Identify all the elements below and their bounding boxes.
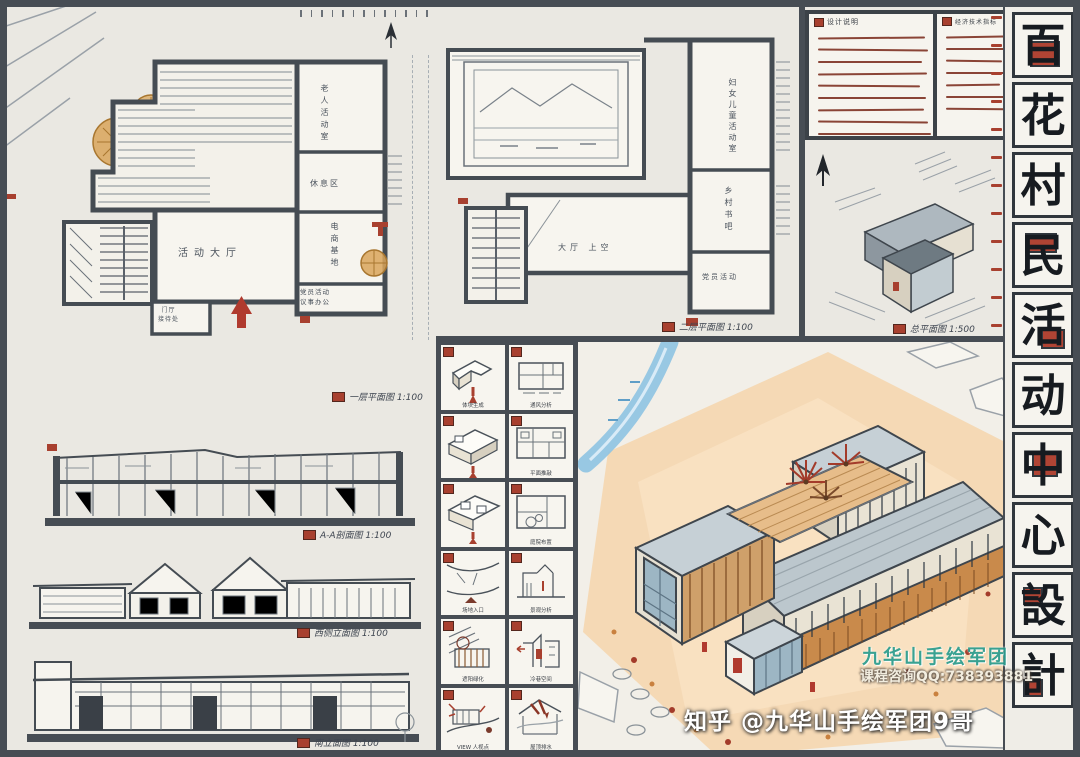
section-detail: [65, 466, 355, 514]
title-char-box: 民: [1012, 222, 1074, 288]
room-label: 大厅 上空: [558, 242, 613, 254]
south-elev-caption: 南立面图 1:100: [297, 736, 379, 749]
analysis-cell: 庭院布置: [509, 482, 573, 547]
title-char: 村: [1020, 163, 1065, 208]
plan1-panel: 老人活动室 休息区 电商基地 党员活动 议事办公 活动大厅 门厅 接待处 一层平…: [0, 0, 450, 424]
room-label: 党员活动: [702, 272, 738, 283]
plan2-panel: 妇女儿童活动室 乡村书吧 党员活动 大厅 上空 二层平面图 1:100: [440, 0, 805, 340]
red-square-bullet-icon: [893, 324, 906, 334]
title-char: 設: [1020, 583, 1065, 628]
room-label: 乡村书吧: [722, 186, 734, 234]
title-strip: 百 花 村 民 活 动 中 心 設 計: [1005, 0, 1080, 757]
divider-vertical-notes: [799, 7, 805, 339]
title-char: 中: [1020, 443, 1065, 488]
site-hatch: [835, 152, 995, 210]
site-building-axon: [865, 204, 973, 312]
section-wall: [53, 456, 60, 516]
balcony-hatch: [388, 156, 402, 204]
analysis-cell: 景观分析: [509, 551, 573, 616]
red-square-bullet-icon: [332, 392, 345, 402]
title-char: 活: [1020, 303, 1065, 348]
caption-text: 一层平面图 1:100: [349, 390, 423, 403]
plan1-upper-wing: [93, 62, 297, 210]
room-label: 老人活动室: [318, 84, 330, 144]
red-square-bullet-icon: [662, 322, 675, 332]
presentation-board: 老人活动室 休息区 电商基地 党员活动 议事办公 活动大厅 门厅 接待处 一层平…: [0, 0, 1080, 757]
section-panel: A-A剖面图 1:100: [5, 428, 435, 544]
road-lines: [0, 2, 104, 150]
plan2-drawing: [440, 0, 805, 340]
red-tick-marks: [991, 16, 1002, 352]
plan2-hall-void: [508, 195, 692, 273]
plan2-caption: 二层平面图 1:100: [662, 320, 753, 333]
north-arrow-icon: [385, 22, 397, 48]
construction-line: [412, 55, 413, 340]
room-label: 活动大厅: [178, 246, 242, 261]
analysis-strip: 体块生成 通风分析: [436, 340, 578, 757]
analysis-caption: 体块生成: [444, 400, 502, 408]
plan1-drawing: [0, 0, 450, 424]
title-char: 花: [1020, 93, 1065, 138]
north-arrow-icon: [816, 154, 830, 186]
title-char-box: 百: [1012, 12, 1074, 78]
title-char: 心: [1020, 513, 1065, 558]
red-square-bullet-icon: [297, 738, 310, 748]
title-char-box: 村: [1012, 152, 1074, 218]
title-char: 动: [1020, 373, 1065, 418]
caption-text: A-A剖面图 1:100: [320, 528, 391, 541]
analysis-caption: 场地入口: [444, 605, 502, 613]
analysis-cell: 通风分析: [509, 345, 573, 410]
caption-text: 二层平面图 1:100: [679, 320, 753, 333]
interior-perspective-sketch: [448, 50, 644, 178]
notes-panel: 设计说明 经济技术指标: [805, 10, 1005, 140]
title-char-box: 动: [1012, 362, 1074, 428]
top-edge-ticks: [300, 10, 428, 17]
analysis-caption: 平面推敲: [512, 468, 570, 476]
red-square-bullet-icon: [303, 530, 316, 540]
site-plan-panel: 总平面图 1:500: [805, 142, 1005, 338]
site-plan-drawing: [805, 142, 1005, 338]
analysis-caption: 屋顶排水: [512, 742, 570, 750]
section-wall: [396, 452, 403, 516]
analysis-caption: 通风分析: [512, 400, 570, 408]
caption-text: 南立面图 1:100: [314, 736, 379, 749]
caption-text: 总平面图 1:500: [910, 322, 975, 335]
analysis-cell: 冷巷空间: [509, 619, 573, 684]
section-caption: A-A剖面图 1:100: [303, 528, 391, 541]
analysis-caption: 遮阳绿化: [444, 674, 502, 682]
divider-horizontal-axon-top: [436, 336, 1005, 342]
watermark-studio: 九华山手绘军团: [862, 642, 1009, 669]
room-label: 电商基地: [328, 222, 340, 270]
analysis-cell: 平面推敲: [509, 414, 573, 479]
title-char: 百: [1020, 23, 1065, 68]
analysis-caption: 庭院布置: [512, 537, 570, 545]
west-elev-caption: 西侧立面图 1:100: [297, 626, 388, 639]
room-label: 门厅 接待处: [158, 306, 179, 324]
title-char-box: 花: [1012, 82, 1074, 148]
section-base-bar: [45, 518, 415, 526]
analysis-caption: VIEW 人视点: [444, 742, 502, 750]
watermark-zhihu: 知乎 @九华山手绘军团9哥: [684, 702, 974, 736]
analysis-cell: 遮阳绿化: [441, 619, 505, 684]
room-label: 妇女儿童活动室: [712, 78, 738, 155]
title-char-box: 心: [1012, 502, 1074, 568]
design-notes-title: 设计说明: [827, 17, 859, 27]
roof-line: [55, 450, 401, 458]
west-elevation-panel: 西侧立面图 1:100: [5, 548, 435, 644]
title-char: 民: [1020, 233, 1065, 278]
plan1-caption: 一层平面图 1:100: [332, 390, 423, 403]
axon-panel: [578, 342, 1005, 757]
section-drawing: [5, 428, 435, 544]
red-square-bullet-icon: [814, 18, 824, 27]
analysis-caption: 冷巷空间: [512, 674, 570, 682]
construction-line: [428, 55, 429, 340]
analysis-cell: VIEW 人视点: [441, 688, 505, 753]
title-char-box: 中: [1012, 432, 1074, 498]
section-marker-icon: [47, 444, 57, 451]
window-hatch: [776, 62, 790, 234]
figure: [810, 682, 815, 692]
analysis-cell: [441, 414, 505, 479]
figure: [702, 642, 707, 652]
south-elevation-panel: 南立面图 1:100: [5, 648, 435, 752]
analysis-cell: [441, 482, 505, 547]
floor-slab: [55, 480, 401, 484]
site-caption: 总平面图 1:500: [893, 322, 975, 335]
watermark-contact: 课程咨询QQ:738393881: [860, 666, 1033, 686]
design-notes-box: 设计说明: [805, 10, 939, 140]
analysis-cell: 屋顶排水: [509, 688, 573, 753]
analysis-cell: 场地入口: [441, 551, 505, 616]
title-char-box: 設: [1012, 572, 1074, 638]
analysis-caption: 景观分析: [512, 605, 570, 613]
caption-text: 西侧立面图 1:100: [314, 626, 388, 639]
title-char-box: 活: [1012, 292, 1074, 358]
axon-drawing: [578, 342, 1005, 757]
room-label: 党员活动 议事办公: [300, 288, 330, 308]
red-square-bullet-icon: [297, 628, 310, 638]
room-label: 休息区: [310, 178, 340, 190]
analysis-cell: 体块生成: [441, 345, 505, 410]
red-square-bullet-icon: [942, 17, 952, 26]
